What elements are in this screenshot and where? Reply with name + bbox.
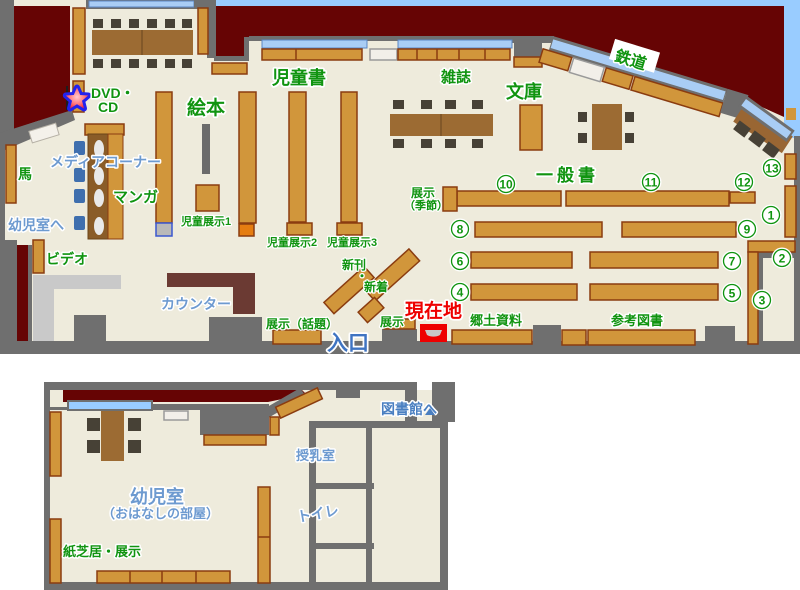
svg-text:展示（話題）: 展示（話題） — [266, 316, 338, 331]
svg-text:展示: 展示 — [411, 186, 435, 200]
svg-text:参考図書: 参考図書 — [611, 313, 663, 328]
svg-text:紙芝居・展示: 紙芝居・展示 — [63, 544, 141, 559]
svg-text:入口: 入口 — [327, 332, 369, 355]
svg-text:カウンター: カウンター — [161, 296, 231, 312]
svg-text:9: 9 — [744, 223, 751, 237]
svg-text:（おはなしの部屋）: （おはなしの部屋） — [102, 506, 219, 521]
svg-text:4: 4 — [457, 286, 464, 300]
svg-text:一般書: 一般書 — [536, 165, 599, 185]
svg-text:児童展示1: 児童展示1 — [180, 214, 231, 228]
svg-text:新着: 新着 — [364, 279, 388, 294]
svg-text:5: 5 — [729, 287, 736, 301]
svg-text:展示: 展示 — [380, 315, 404, 329]
svg-text:郷土資料: 郷土資料 — [470, 313, 522, 328]
svg-text:メディアコーナー: メディアコーナー — [50, 154, 161, 170]
svg-text:7: 7 — [729, 255, 736, 269]
svg-text:ビデオ: ビデオ — [46, 251, 88, 267]
svg-text:6: 6 — [457, 255, 464, 269]
svg-text:CD: CD — [98, 99, 118, 115]
svg-text:幼児室へ: 幼児室へ — [8, 217, 64, 233]
svg-text:絵本: 絵本 — [187, 96, 225, 119]
svg-text:馬: 馬 — [18, 166, 32, 182]
svg-text:8: 8 — [457, 223, 464, 237]
svg-text:13: 13 — [765, 162, 779, 176]
svg-text:児童展示2: 児童展示2 — [266, 235, 317, 249]
svg-text:11: 11 — [645, 176, 658, 190]
svg-text:雑誌: 雑誌 — [440, 68, 471, 86]
svg-text:現在地: 現在地 — [405, 299, 462, 322]
svg-text:12: 12 — [737, 176, 751, 190]
svg-text:1: 1 — [768, 209, 775, 223]
svg-text:マンガ: マンガ — [113, 189, 158, 206]
svg-text:文庫: 文庫 — [506, 81, 542, 102]
svg-text:3: 3 — [759, 294, 766, 308]
svg-text:10: 10 — [499, 178, 513, 192]
svg-text:2: 2 — [779, 252, 786, 266]
svg-text:幼児室: 幼児室 — [130, 486, 184, 507]
svg-text:児童書: 児童書 — [271, 67, 326, 88]
svg-text:児童展示3: 児童展示3 — [326, 235, 377, 249]
svg-text:授乳室: 授乳室 — [296, 448, 335, 463]
svg-text:（季節）: （季節） — [404, 198, 448, 212]
